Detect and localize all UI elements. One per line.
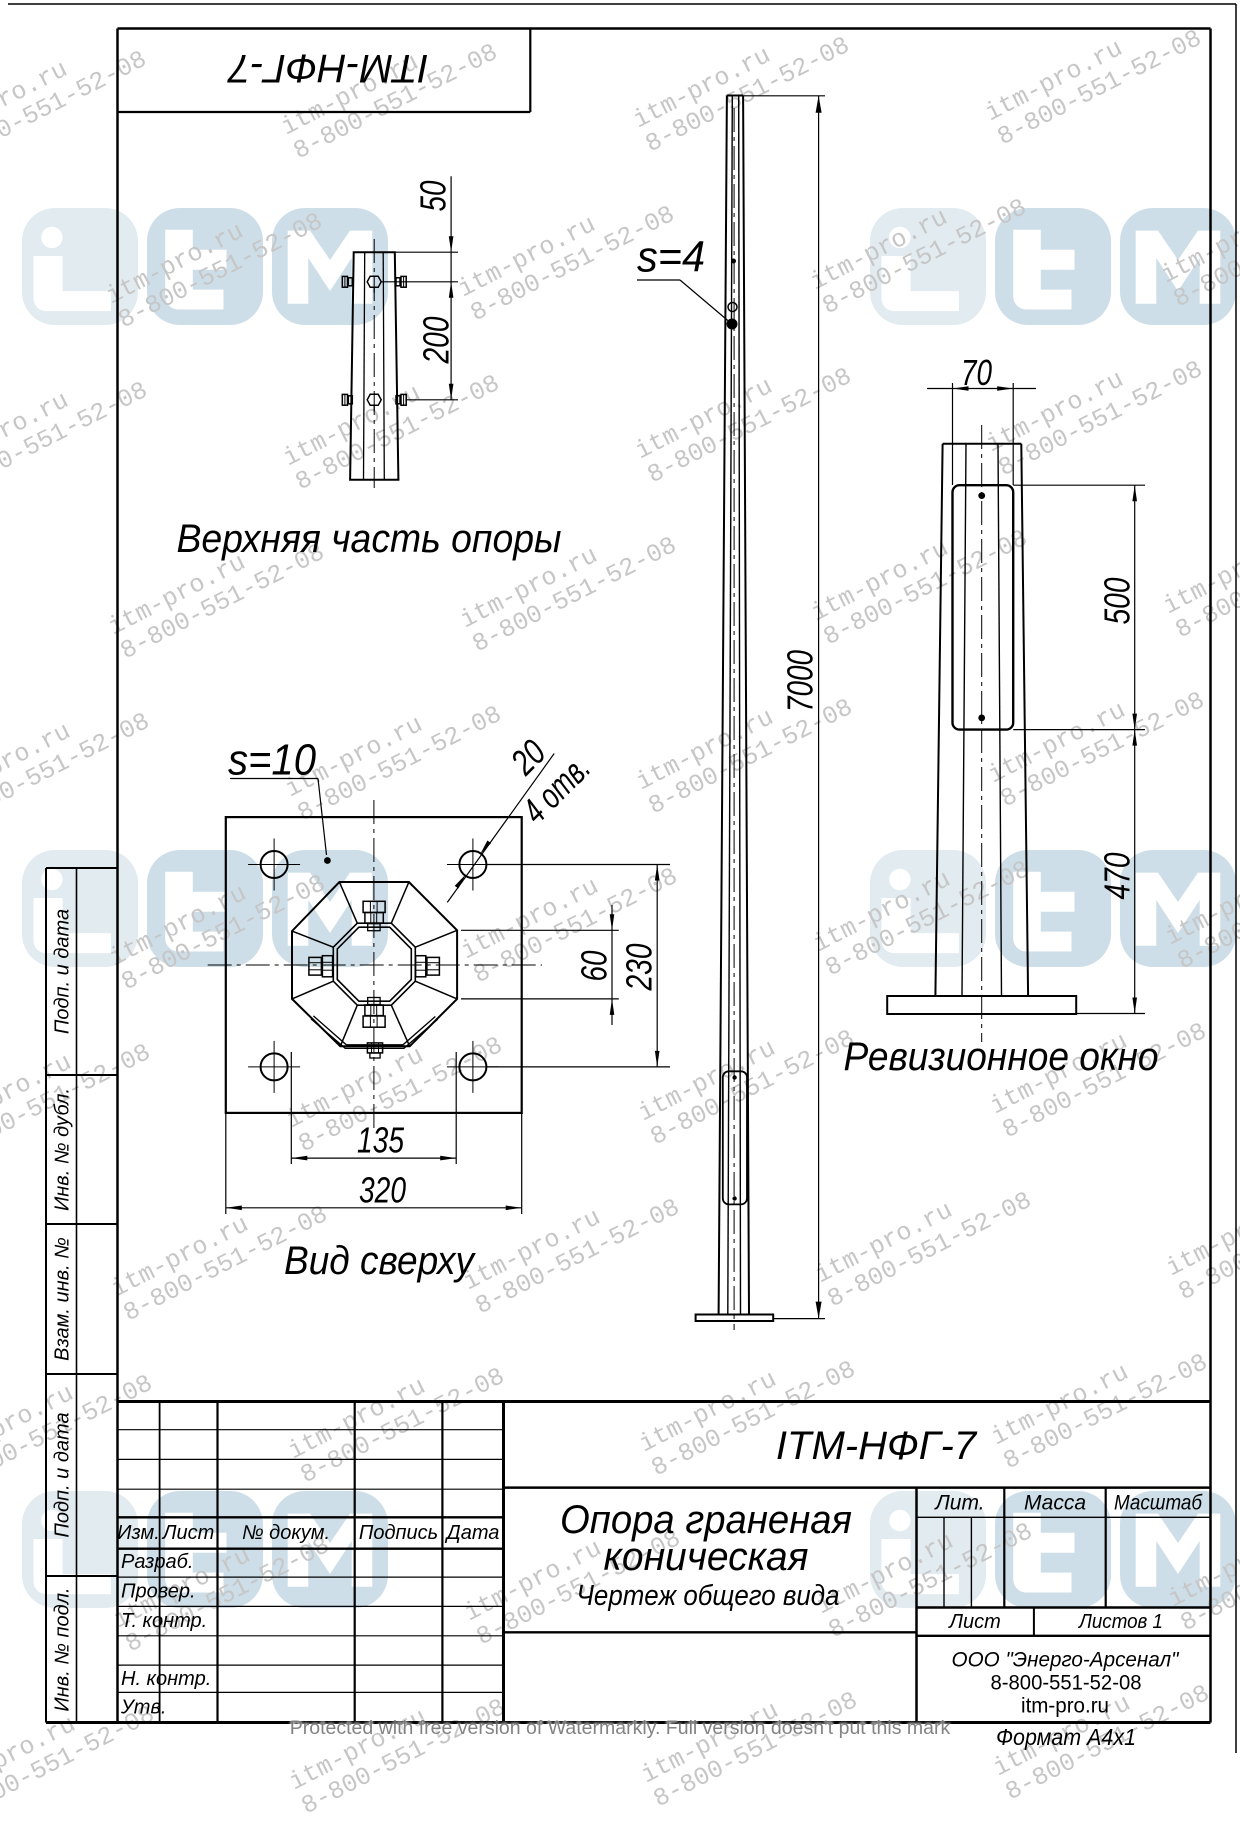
svg-text:Разраб.: Разраб. xyxy=(121,1551,193,1573)
svg-text:Масса: Масса xyxy=(1024,1492,1086,1515)
svg-text:Ревизионное окно: Ревизионное окно xyxy=(844,1035,1159,1079)
svg-text:Подп. и дата: Подп. и дата xyxy=(52,909,74,1034)
svg-text:ООО "Энерго-Арсенал": ООО "Энерго-Арсенал" xyxy=(952,1649,1181,1672)
svg-text:№ докум.: № докум. xyxy=(242,1522,330,1544)
svg-text:Изм.: Изм. xyxy=(117,1522,160,1544)
svg-text:ITM-НФГ-7: ITM-НФГ-7 xyxy=(776,1424,978,1468)
svg-text:Лист: Лист xyxy=(161,1522,215,1544)
svg-text:Подпись: Подпись xyxy=(359,1522,438,1544)
svg-text:Вид сверху: Вид сверху xyxy=(284,1239,477,1283)
svg-text:200: 200 xyxy=(416,317,457,365)
svg-text:s=10: s=10 xyxy=(228,736,316,785)
svg-text:s=4: s=4 xyxy=(637,233,705,282)
svg-text:Верхняя часть опоры: Верхняя часть опоры xyxy=(177,517,562,561)
svg-text:Чертеж общего вида: Чертеж общего вида xyxy=(577,1580,840,1612)
svg-text:Н. контр.: Н. контр. xyxy=(121,1668,211,1690)
svg-text:8-800-551-52-08: 8-800-551-52-08 xyxy=(991,1672,1142,1695)
svg-text:Лист: Лист xyxy=(947,1611,1001,1633)
svg-text:70: 70 xyxy=(961,352,992,393)
svg-text:Инв. № дубл.: Инв. № дубл. xyxy=(52,1088,74,1211)
svg-text:Листов 1: Листов 1 xyxy=(1077,1611,1163,1633)
svg-text:ITM-НФГ-7: ITM-НФГ-7 xyxy=(227,46,429,90)
svg-text:Взам. инв. №: Взам. инв. № xyxy=(52,1237,74,1361)
svg-text:Инв. № подл.: Инв. № подл. xyxy=(52,1587,74,1711)
svg-text:60: 60 xyxy=(574,951,615,982)
svg-text:Т. контр.: Т. контр. xyxy=(121,1610,207,1632)
svg-text:50: 50 xyxy=(413,181,454,212)
svg-text:230: 230 xyxy=(619,944,660,992)
svg-text:Лит.: Лит. xyxy=(933,1492,984,1515)
svg-text:Масштаб: Масштаб xyxy=(1114,1492,1203,1515)
svg-text:Дата: Дата xyxy=(445,1522,500,1544)
svg-text:Подп. и дата: Подп. и дата xyxy=(52,1412,74,1537)
svg-text:7000: 7000 xyxy=(780,650,821,712)
svg-text:Провер.: Провер. xyxy=(121,1581,196,1603)
svg-text:Утв.: Утв. xyxy=(120,1697,166,1719)
svg-text:коническая: коническая xyxy=(604,1535,809,1579)
svg-text:500: 500 xyxy=(1097,578,1138,625)
svg-text:135: 135 xyxy=(357,1120,405,1161)
svg-text:470: 470 xyxy=(1097,853,1138,900)
svg-text:320: 320 xyxy=(359,1170,406,1211)
svg-text:itm-pro.ru: itm-pro.ru xyxy=(1021,1695,1109,1718)
